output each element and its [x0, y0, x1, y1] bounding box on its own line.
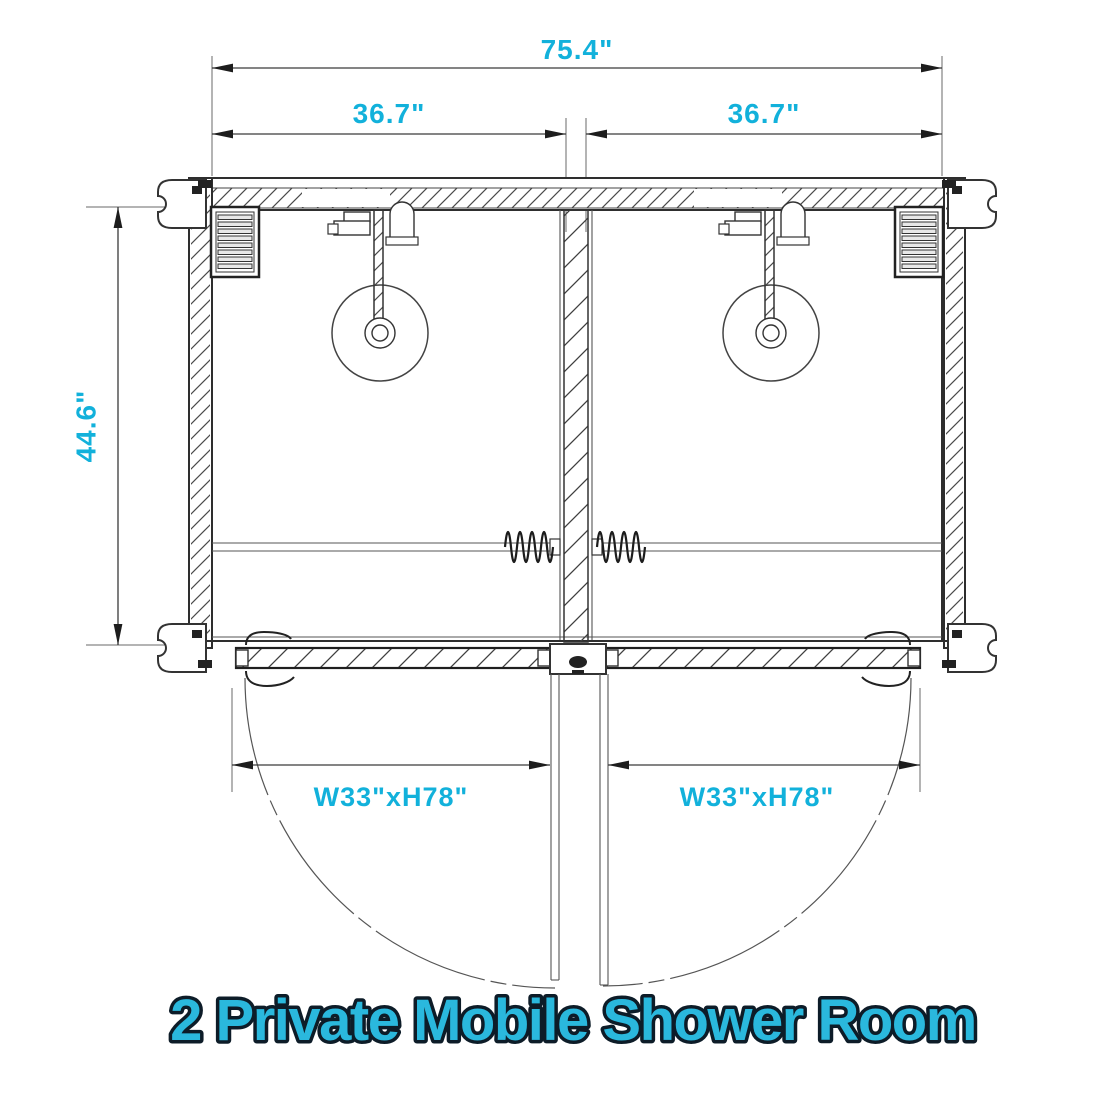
- right-shower-unit: [719, 202, 819, 381]
- left-door-swing-arc: [245, 678, 555, 988]
- left-door-leaf-open: [551, 674, 559, 980]
- center-door-post: [550, 644, 606, 674]
- left-door-size-label: W33"xH78": [314, 782, 469, 812]
- right-door-swing-arc: [603, 678, 911, 986]
- right-door-leaf-open: [600, 674, 608, 985]
- container-shell: [158, 178, 996, 672]
- depth-label: 44.6": [70, 390, 101, 463]
- right-door-leaf-closed: [606, 648, 920, 668]
- page-title: 2 Private Mobile Shower Room: [170, 988, 976, 1053]
- left-curtain-spring: [505, 532, 553, 562]
- right-room-width-label: 36.7": [728, 98, 801, 129]
- right-door-size-label: W33"xH78": [680, 782, 835, 812]
- left-door-leaf-closed: [236, 648, 550, 668]
- depth-dimension: 44.6": [70, 207, 192, 645]
- overall-width-label: 75.4": [541, 34, 614, 65]
- left-shower-unit: [328, 202, 428, 381]
- door-dimensions: W33"xH78" W33"xH78": [232, 688, 920, 812]
- door-latch: [569, 656, 587, 668]
- left-room-vent: [211, 207, 259, 277]
- floor-plan-drawing: 75.4" 36.7" 36.7" 44.6": [0, 0, 1096, 1096]
- floor-plan-page: 75.4" 36.7" 36.7" 44.6": [0, 0, 1096, 1096]
- left-room-width-label: 36.7": [353, 98, 426, 129]
- divider-wall: [560, 210, 592, 642]
- right-room-vent: [895, 207, 943, 277]
- right-curtain-spring: [597, 532, 645, 562]
